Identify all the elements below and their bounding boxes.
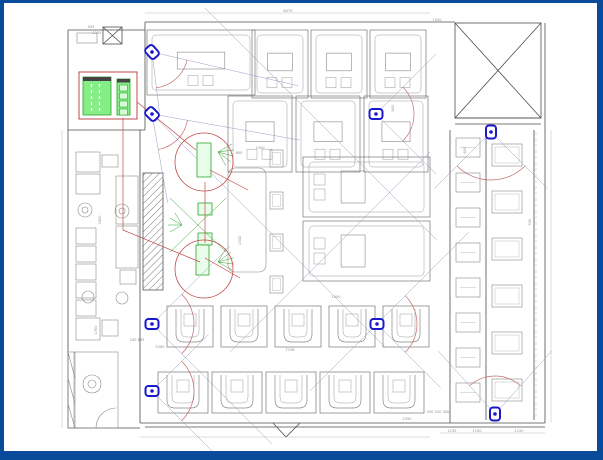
booth-table	[177, 52, 225, 69]
corridor-table-inner	[495, 288, 519, 304]
corridor-table-inner	[495, 194, 519, 210]
camera-fov-line	[491, 132, 548, 189]
camera-lens	[374, 112, 378, 116]
sight-line	[205, 8, 437, 240]
dimension-label: 1500	[255, 146, 265, 150]
corridor-table	[492, 238, 522, 260]
booth-unit	[383, 306, 429, 347]
booth-unit	[147, 30, 255, 95]
legend-table-header	[83, 77, 111, 81]
frame-border-top	[0, 0, 603, 3]
booth-table	[246, 122, 274, 142]
booth-bench-inner	[397, 309, 415, 337]
floor-plan-svg: 8070150094312053400170020426001500800600…	[0, 0, 603, 460]
booth-seat	[385, 78, 395, 88]
camera-fov-line	[377, 324, 441, 388]
void-xbox-top-right	[455, 23, 541, 118]
booth-bench-inner	[334, 375, 356, 403]
booth-seat	[262, 149, 272, 159]
booth-seat	[314, 174, 325, 185]
dimension-label: 2042	[238, 235, 242, 244]
corridor-table-inner	[495, 382, 519, 398]
walls-layer	[68, 22, 545, 437]
dimension-label: 7158	[285, 348, 295, 352]
booth-unit	[158, 372, 208, 413]
booth-table	[177, 380, 189, 392]
dimension-label: 1700	[94, 325, 98, 335]
dimension-label: 1100	[472, 429, 482, 433]
booth-bench-inner	[172, 375, 194, 403]
green-highlight-layer	[168, 143, 234, 275]
booth-bench-inner	[289, 309, 307, 337]
corridor-table	[492, 285, 522, 307]
dimension-label: 943	[88, 25, 95, 29]
dimension-label: 1205	[92, 31, 101, 35]
booth-bench-inner	[181, 309, 199, 337]
corridor-table	[492, 144, 522, 166]
legend-column-cell	[120, 93, 128, 99]
bottom-wall-notch	[273, 423, 300, 437]
camera-icon	[490, 408, 500, 421]
legend-column-cell	[120, 85, 128, 91]
red-leader-line	[210, 170, 248, 190]
booth-table	[327, 53, 352, 71]
booth-table	[341, 235, 365, 267]
drawing-page: 8070150094312053400170020426001500800600…	[0, 0, 603, 460]
camera-icon	[146, 386, 159, 396]
green-furniture	[196, 245, 209, 275]
camera-fov-line	[152, 324, 272, 444]
booth-inner	[309, 226, 424, 276]
restroom	[68, 352, 118, 428]
booth-unit	[228, 96, 292, 172]
booth-table	[382, 122, 410, 142]
booth-table	[386, 53, 411, 71]
booth-seat	[188, 76, 198, 86]
camera-lens	[489, 130, 493, 134]
green-fan-line	[170, 225, 182, 232]
camera-fov-line	[376, 114, 436, 174]
booth-unit	[320, 372, 370, 413]
legend-box	[79, 72, 137, 119]
booth-bench-inner	[280, 375, 302, 403]
stage-area	[228, 168, 266, 272]
booth-bench-inner	[343, 309, 361, 337]
booth-inner	[152, 35, 250, 90]
camera-icon	[144, 44, 160, 60]
dimension-lines	[62, 13, 551, 437]
booth-inner	[375, 35, 421, 93]
camera-fov-line	[152, 52, 159, 112]
booth-seat	[315, 149, 325, 159]
booth-table	[393, 380, 405, 392]
booth-unit	[275, 306, 321, 347]
frame-border-right	[597, 0, 603, 460]
camera-cam-4	[434, 126, 547, 189]
sight-lines-layer	[152, 8, 469, 391]
booth-inner	[257, 35, 303, 93]
dimension-label: 5280	[155, 345, 165, 349]
dimension-label: 1500	[432, 18, 442, 22]
booth-unit	[266, 372, 316, 413]
camera-fov-line	[152, 391, 217, 456]
booth-table	[238, 314, 250, 326]
booth-bench-inner	[226, 375, 248, 403]
frame-border-left	[0, 0, 4, 460]
booth-table	[339, 380, 351, 392]
camera-icon	[370, 109, 383, 119]
dimension-label: 600	[463, 146, 467, 154]
legend-column-cell	[120, 101, 128, 107]
booth-unit	[370, 30, 426, 98]
booth-bench-inner	[388, 375, 410, 403]
booth-unit	[329, 306, 375, 347]
dimension-label: 240 895	[130, 338, 145, 342]
booth-seat	[400, 78, 410, 88]
side-table-inner	[273, 195, 281, 207]
booth-table	[400, 314, 412, 326]
booth-seat	[330, 149, 340, 159]
dimension-label: 1400	[331, 295, 341, 299]
booth-table	[268, 53, 293, 71]
corridor-table	[492, 191, 522, 213]
legend-column-header	[117, 79, 130, 83]
booth-unit	[252, 30, 308, 98]
red-leader-line	[137, 102, 196, 150]
dimension-label: 800	[391, 104, 395, 112]
corridor-table-inner	[495, 241, 519, 257]
camera-fov-line	[434, 132, 491, 189]
camera-cam-2	[144, 106, 300, 203]
camera-lens	[493, 412, 497, 416]
camera-fov-arc	[403, 87, 414, 141]
void-xbox-top-left	[103, 27, 122, 44]
booth-unit	[311, 30, 367, 98]
booth-table	[285, 380, 297, 392]
legend-column-cell	[120, 109, 128, 115]
booth-seating-layer	[147, 30, 522, 413]
corridor-table-inner	[495, 335, 519, 351]
booth-seat	[398, 149, 408, 159]
booth-unit	[303, 157, 430, 217]
dimension-label: 600	[236, 151, 244, 155]
camera-fov-arc	[182, 294, 194, 353]
booth-seat	[314, 238, 325, 249]
camera-lens	[150, 389, 154, 393]
booth-seat	[314, 189, 325, 200]
camera-fov-line	[495, 351, 552, 414]
booth-table	[292, 314, 304, 326]
camera-fov-arc	[182, 361, 194, 420]
dimension-label: 1150	[514, 429, 524, 433]
dimension-label: 930	[528, 218, 532, 226]
dimension-label: 2350	[402, 417, 412, 421]
camera-fov-line	[152, 334, 209, 391]
camera-icon	[146, 319, 159, 329]
booth-seat	[247, 149, 257, 159]
corridor-table	[492, 379, 522, 401]
dimension-label: 1135	[447, 429, 456, 433]
camera-fov-line	[438, 351, 495, 414]
green-fan-line	[218, 262, 232, 270]
booth-unit	[221, 306, 267, 347]
booth-table	[341, 171, 365, 203]
green-fan-line	[218, 262, 234, 264]
camera-icon	[486, 126, 496, 139]
booth-unit	[303, 221, 430, 281]
booth-seat	[326, 78, 336, 88]
green-furniture	[197, 143, 211, 177]
booth-seat	[341, 78, 351, 88]
dimension-label: 200 200 300	[427, 410, 451, 414]
booth-unit	[374, 372, 424, 413]
booth-unit	[212, 372, 262, 413]
frame-border-bottom	[0, 451, 603, 460]
booth-unit	[167, 306, 213, 347]
booth-seat	[203, 76, 213, 86]
booth-table	[346, 314, 358, 326]
camera-fov-line	[377, 232, 469, 324]
camera-icon	[371, 319, 384, 329]
side-table-inner	[273, 153, 281, 165]
booth-seat	[383, 149, 393, 159]
booth-inner	[316, 35, 362, 93]
side-table-inner	[273, 279, 281, 291]
camera-fov-arc	[156, 60, 187, 88]
booth-table	[314, 122, 342, 142]
camera-lens	[150, 322, 154, 326]
hatched-wall	[143, 173, 163, 290]
booth-table	[231, 380, 243, 392]
booth-unit	[296, 96, 360, 172]
legend-green-table	[83, 77, 111, 115]
camera-lens	[375, 322, 379, 326]
dimension-label: 8070	[283, 9, 293, 13]
corridor-table	[492, 332, 522, 354]
camera-cam-7	[146, 334, 218, 456]
booth-inner	[233, 101, 287, 167]
booth-bench-inner	[235, 309, 253, 337]
dimension-label: 3400	[98, 215, 102, 225]
corridor-table-inner	[495, 147, 519, 163]
